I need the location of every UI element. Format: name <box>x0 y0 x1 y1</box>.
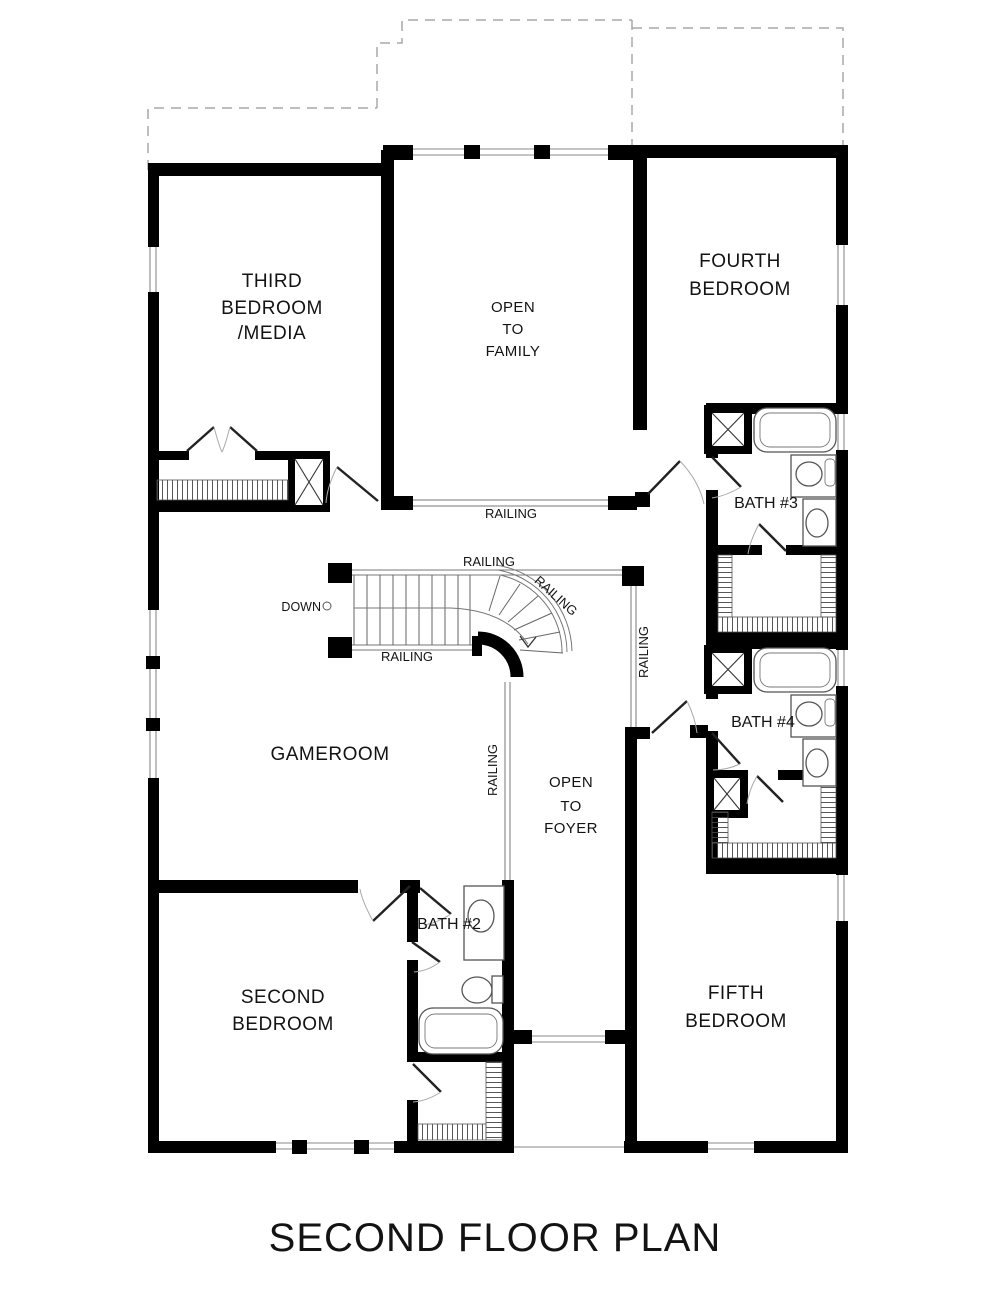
wall-stub <box>635 492 650 507</box>
label-railing-hall: RAILING <box>636 626 651 678</box>
toilet-bowl <box>462 977 492 1003</box>
door-leaf-bath2-hall <box>420 888 451 914</box>
roof-outline-right <box>632 28 843 145</box>
window-right-bath4 <box>838 649 844 686</box>
wall-segment <box>148 292 159 610</box>
toilet-bowl <box>806 749 828 777</box>
mullion-post <box>146 656 160 669</box>
label-second-bedroom-line2: BEDROOM <box>232 1014 334 1035</box>
railing-post <box>383 496 413 510</box>
label-bath3: BATH #3 <box>734 495 798 512</box>
roof-outline-center <box>377 20 632 108</box>
label-open-to-foyer-line2: TO <box>560 798 581 815</box>
sink-basin <box>796 702 822 726</box>
railing-post <box>328 563 352 583</box>
closet-rod-hatch <box>712 843 836 858</box>
label-open-to-foyer-line3: FOYER <box>544 820 598 837</box>
label-gameroom: GAMEROOM <box>270 744 389 765</box>
sink-basin <box>796 462 822 486</box>
wall-segment <box>714 545 762 555</box>
door-swing-arc <box>747 776 757 804</box>
closet-rod-hatch <box>718 617 836 632</box>
wall-segment <box>381 150 394 510</box>
wall-segment <box>159 451 189 460</box>
wall-stub <box>506 1030 532 1044</box>
window-bottom-fifth-bedroom <box>708 1143 754 1149</box>
wall-segment <box>630 145 848 158</box>
railing-stair-top <box>352 570 626 575</box>
wall-segment <box>836 450 848 650</box>
floor-plan-drawing: THIRD BEDROOM /MEDIA OPEN TO FAMILY FOUR… <box>0 0 1000 1294</box>
wall-segment <box>148 778 159 1153</box>
closet-rod-hatch <box>821 780 836 843</box>
label-open-to-foyer-line1: OPEN <box>549 774 593 791</box>
staircase <box>323 575 563 677</box>
window-right-fourth-bedroom <box>838 245 844 305</box>
label-third-bedroom-line3: /MEDIA <box>238 323 306 344</box>
window-right-fifth-bedroom <box>838 875 844 921</box>
label-railing-stair-bottom: RAILING <box>381 649 433 664</box>
label-third-bedroom-line2: BEDROOM <box>221 298 323 319</box>
roof-outline-left <box>148 108 377 170</box>
door-leaf-bath3 <box>712 457 741 487</box>
door-swing-arc <box>360 889 373 921</box>
bathtub <box>754 648 836 692</box>
closet-rod-hatch <box>486 1062 502 1140</box>
wall-segment <box>148 163 394 176</box>
label-second-bedroom-line1: SECOND <box>241 987 325 1008</box>
toilet-bowl <box>806 509 828 537</box>
closet-rod-hatch <box>418 1124 486 1140</box>
foyer-ledge-line <box>532 1036 605 1042</box>
mullion-post <box>534 145 550 159</box>
railing-post <box>608 496 637 510</box>
wall-segment <box>255 451 290 460</box>
closet-rod-hatch <box>157 480 288 500</box>
door-leaf-fourth-bedroom <box>648 461 680 494</box>
door-swing-arc <box>214 427 230 452</box>
stair-down-marker-icon <box>323 602 331 610</box>
stair-treads-straight <box>354 575 470 645</box>
wall-segment <box>148 1141 276 1153</box>
bathtub <box>754 408 836 452</box>
label-down: DOWN <box>281 600 321 614</box>
wall-segment <box>706 858 848 874</box>
door-leaf-closet2 <box>413 1064 441 1092</box>
label-fourth-bedroom-line1: FOURTH <box>699 251 781 272</box>
wall-segment <box>148 163 159 247</box>
wall-segment <box>836 145 848 245</box>
door-swing-arc <box>680 461 704 504</box>
wall-segment <box>633 150 647 430</box>
closet-double-door-leaf <box>187 427 214 451</box>
wall-segment <box>407 1100 418 1153</box>
railing-post <box>622 566 644 586</box>
label-open-to-family-line1: OPEN <box>491 299 535 316</box>
label-fourth-bedroom-line2: BEDROOM <box>689 279 791 300</box>
wall-segment <box>836 305 848 413</box>
wall-stub <box>605 1030 627 1044</box>
mullion-post <box>292 1140 307 1154</box>
door-leaf-bath2-bedroom <box>412 942 440 962</box>
railing-foyer-vertical <box>505 682 510 880</box>
window-family-top <box>413 149 608 155</box>
window-left-gameroom <box>150 610 156 778</box>
wall-stub <box>690 725 708 738</box>
label-third-bedroom-line1: THIRD <box>242 271 303 292</box>
closet-double-door-leaf <box>230 427 257 451</box>
door-leaf-fifth-bedroom <box>652 701 687 733</box>
label-fifth-bedroom-line2: BEDROOM <box>685 1011 787 1032</box>
closet-rod-hatch <box>712 812 728 843</box>
page-title: SECOND FLOOR PLAN <box>269 1216 722 1260</box>
label-open-to-family-line2: TO <box>502 321 523 338</box>
wall-segment <box>407 960 418 1062</box>
label-bath4: BATH #4 <box>731 714 795 731</box>
door-leaf-third-bedroom <box>337 467 378 501</box>
mullion-post <box>464 145 480 159</box>
wall-segment <box>836 686 848 875</box>
door-leaf-second-bedroom <box>373 886 410 921</box>
wall-segment <box>754 1141 848 1153</box>
wall-segment <box>836 921 848 1153</box>
mullion-post <box>146 718 160 731</box>
stair-newel-curb <box>478 638 517 677</box>
railing-post <box>328 637 352 658</box>
door-leaf-closet3 <box>759 524 786 551</box>
closet-rod-hatch <box>821 555 836 617</box>
floor-plan-page: THIRD BEDROOM /MEDIA OPEN TO FAMILY FOUR… <box>0 0 1000 1294</box>
window-left-upper <box>150 247 156 292</box>
wall-segment <box>625 727 637 1153</box>
wall-stub <box>637 727 650 739</box>
toilet-tank <box>492 976 503 1003</box>
label-railing-foyer: RAILING <box>485 744 500 796</box>
wall-segment <box>706 490 718 645</box>
wall-segment <box>148 880 358 893</box>
stair-newel-curb-end <box>472 636 482 656</box>
label-railing-stair-top: RAILING <box>463 554 515 569</box>
closet-rod-hatch <box>718 555 732 617</box>
label-bath2: BATH #2 <box>417 916 481 933</box>
label-railing-family: RAILING <box>485 506 537 521</box>
label-fifth-bedroom-line1: FIFTH <box>708 983 764 1004</box>
mullion-post <box>354 1140 369 1154</box>
window-right-bath3 <box>838 413 844 450</box>
label-open-to-family-line3: FAMILY <box>486 343 541 360</box>
